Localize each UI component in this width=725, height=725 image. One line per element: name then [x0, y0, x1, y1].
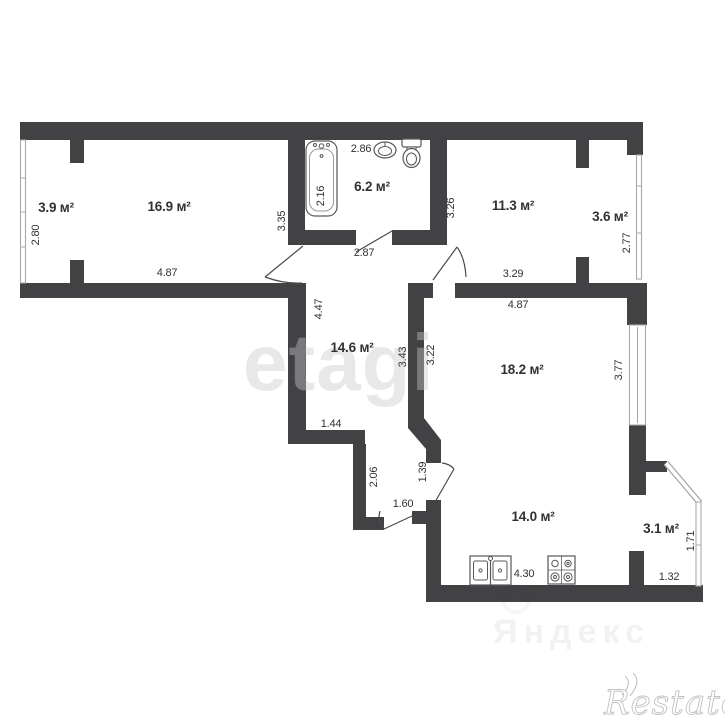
- wall-left-section-bottom: [20, 283, 303, 298]
- door-bedroom: [433, 247, 466, 280]
- label-area-bedroom: 11.3 м²: [492, 198, 535, 213]
- floorplan-svg: etagi Яндекс 3.9 м² 16.9 м² 6.2 м² 11.3 …: [0, 0, 725, 725]
- wall-corner-top-right: [627, 140, 643, 155]
- label-dim-kitchen-door: 1.39: [417, 462, 429, 483]
- restate-logo-text: Restate: [603, 683, 725, 723]
- wall-stub-balcony-left-bottom: [70, 260, 84, 283]
- label-dim-hallway-step: 1.44: [321, 418, 342, 430]
- label-dim-kitchen-width: 4.30: [514, 568, 535, 580]
- floorplan-image: etagi Яндекс 3.9 м² 16.9 м² 6.2 м² 11.3 …: [0, 0, 725, 725]
- wall-top: [20, 122, 643, 140]
- wall-stub-balcony-right-bottom: [576, 257, 589, 283]
- label-dim-bathroom-top: 2.86: [351, 143, 372, 155]
- label-area-kitchen: 14.0 м²: [511, 509, 555, 524]
- wall-junction-top: [408, 283, 433, 298]
- wall-bathroom-left: [288, 140, 305, 245]
- wall-hallway-step: [288, 430, 365, 444]
- kitchen-sink: [470, 556, 511, 585]
- wall-stub-balcony-right-top: [576, 140, 589, 168]
- wall-entrance-stub: [412, 511, 426, 524]
- wall-bathroom-bottom-left: [288, 230, 356, 245]
- label-dim-living-room-width: 4.87: [157, 267, 178, 279]
- label-dim-bedroom-width: 3.29: [503, 268, 524, 280]
- label-area-living-kitchen: 18.2 м²: [500, 362, 544, 377]
- label-dim-bathtub-length: 2.16: [315, 186, 327, 207]
- bathroom-sink: [374, 142, 396, 158]
- toilet: [402, 139, 421, 168]
- wall-diagonal: [408, 418, 441, 463]
- label-dim-entrance-door: 1.60: [393, 498, 414, 510]
- label-dim-balcony-right-height: 2.77: [621, 233, 633, 254]
- door-livingroom1: [265, 246, 303, 283]
- label-dim-balcony-bottom-height: 1.71: [685, 531, 697, 552]
- window-balcony-right: [637, 155, 642, 279]
- label-dim-hallway-lower: 2.06: [368, 467, 380, 488]
- wall-bottom: [426, 585, 703, 602]
- label-dim-balcony-bottom-width: 1.32: [659, 571, 680, 583]
- label-area-living-room: 16.9 м²: [147, 199, 191, 214]
- stove: [548, 556, 575, 584]
- label-dim-balcony-left-height: 2.80: [30, 225, 42, 246]
- label-dim-living-kitchen-width: 4.87: [508, 299, 529, 311]
- label-area-hallway: 14.6 м²: [330, 340, 374, 355]
- wall-livingroom2-right-top: [627, 283, 647, 325]
- wall-balcony-bottom-stub: [646, 461, 667, 472]
- restate-logo: Restate: [603, 673, 725, 723]
- label-dim-hallway-right-lower: 3.22: [425, 345, 437, 366]
- label-dim-living-kitchen-height: 3.77: [613, 360, 625, 381]
- label-dim-hallway-left: 4.47: [313, 299, 325, 320]
- wall-bathroom-bottom-right: [392, 230, 433, 245]
- door-entrance: [379, 511, 412, 529]
- label-dim-hallway-right-upper: 3.43: [397, 347, 409, 368]
- svg-text:Яндекс: Яндекс: [493, 613, 650, 651]
- wall-kitchen-balcony: [629, 551, 644, 587]
- door-kitchen: [435, 463, 454, 502]
- label-area-bathroom: 6.2 м²: [354, 179, 391, 194]
- label-area-balcony-right: 3.6 м²: [592, 209, 629, 224]
- wall-bathroom-right: [430, 140, 447, 245]
- label-dim-bathroom-door: 2.87: [354, 247, 375, 259]
- label-dim-bathroom-left: 3.35: [276, 211, 288, 232]
- wall-livingroom2-right-bottom: [629, 425, 646, 495]
- label-dim-bathroom-right: 3.26: [445, 198, 457, 219]
- wall-stub-balcony-left-top: [70, 140, 84, 163]
- wall-hallway-lower-left: [353, 444, 366, 520]
- label-area-balcony-left: 3.9 м²: [38, 200, 75, 215]
- wall-right-section-bottom: [455, 283, 643, 298]
- wall-kitchen-left: [426, 500, 441, 590]
- label-area-balcony-bottom: 3.1 м²: [643, 521, 680, 536]
